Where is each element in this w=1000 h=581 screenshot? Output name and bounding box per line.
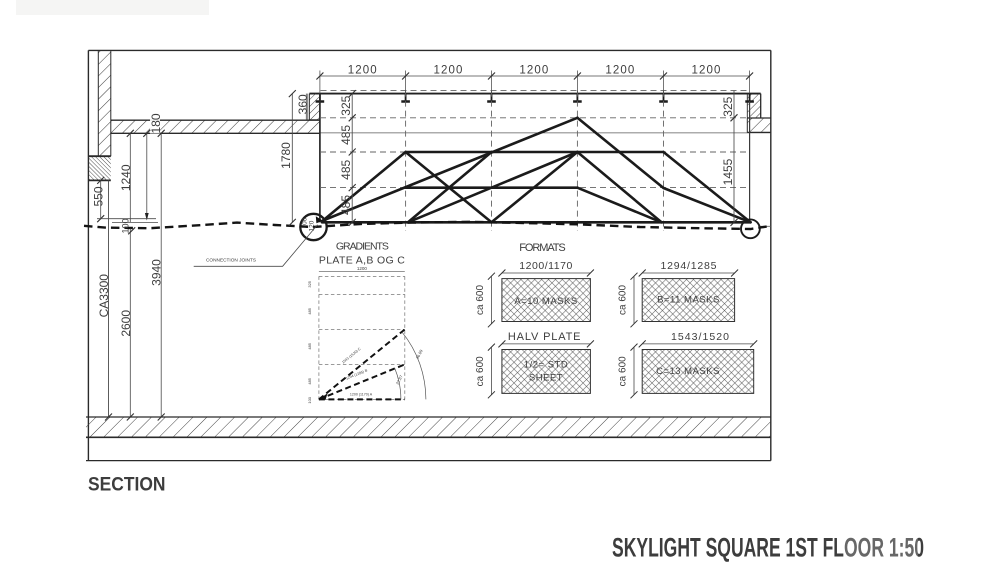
- svg-text:1200: 1200: [434, 65, 464, 77]
- svg-text:1200/1170: 1200/1170: [519, 260, 572, 272]
- svg-text:485: 485: [307, 377, 312, 384]
- svg-text:CONNECTION JOINTS: CONNECTION JOINTS: [206, 257, 256, 262]
- svg-text:1294/1285: 1294/1285: [661, 260, 717, 272]
- svg-text:325: 325: [721, 96, 735, 116]
- svg-text:100: 100: [121, 218, 131, 233]
- svg-text:485: 485: [307, 342, 312, 349]
- svg-text:485: 485: [339, 195, 353, 215]
- svg-text:1780: 1780: [279, 142, 293, 169]
- svg-text:ca 600: ca 600: [475, 285, 486, 315]
- svg-text:ca 600: ca 600: [475, 356, 486, 386]
- svg-text:485: 485: [339, 159, 353, 179]
- svg-text:1200: 1200: [357, 266, 368, 271]
- svg-text:FORMATS: FORMATS: [519, 242, 566, 254]
- svg-text:ca 600: ca 600: [618, 356, 629, 386]
- svg-text:1/2= STD: 1/2= STD: [524, 359, 568, 370]
- svg-text:2600: 2600: [119, 310, 133, 337]
- svg-text:GRADIENTS: GRADIENTS: [336, 240, 389, 252]
- svg-text:SHEET: SHEET: [529, 373, 563, 384]
- svg-text:CA3300: CA3300: [97, 274, 111, 318]
- svg-text:485: 485: [307, 307, 312, 314]
- svg-text:325: 325: [307, 280, 312, 287]
- svg-text:B=11 MASKS: B=11 MASKS: [657, 294, 720, 305]
- svg-text:HALV PLATE: HALV PLATE: [508, 331, 581, 343]
- svg-text:C=13 MASKS: C=13 MASKS: [656, 366, 720, 377]
- svg-text:3940: 3940: [150, 259, 164, 286]
- svg-text:1200 (1170) A: 1200 (1170) A: [350, 393, 373, 397]
- svg-text:1200: 1200: [348, 65, 378, 77]
- svg-text:1543/1520: 1543/1520: [671, 331, 729, 343]
- svg-text:1240: 1240: [119, 164, 133, 191]
- svg-text:SECTION: SECTION: [88, 473, 166, 495]
- svg-text:1200: 1200: [519, 65, 549, 77]
- svg-text:100: 100: [307, 396, 312, 403]
- svg-text:1200: 1200: [692, 65, 722, 77]
- svg-text:PLATE A,B OG C: PLATE A,B OG C: [319, 255, 405, 267]
- svg-text:360: 360: [296, 94, 310, 114]
- svg-text:485: 485: [339, 125, 353, 145]
- svg-text:180: 180: [149, 113, 163, 133]
- svg-text:1200: 1200: [605, 65, 635, 77]
- svg-text:325: 325: [339, 95, 353, 115]
- svg-text:1455: 1455: [721, 158, 735, 185]
- svg-text:A=10 MASKS: A=10 MASKS: [514, 296, 577, 307]
- svg-text:ca 600: ca 600: [618, 285, 629, 315]
- svg-text:550: 550: [91, 186, 105, 206]
